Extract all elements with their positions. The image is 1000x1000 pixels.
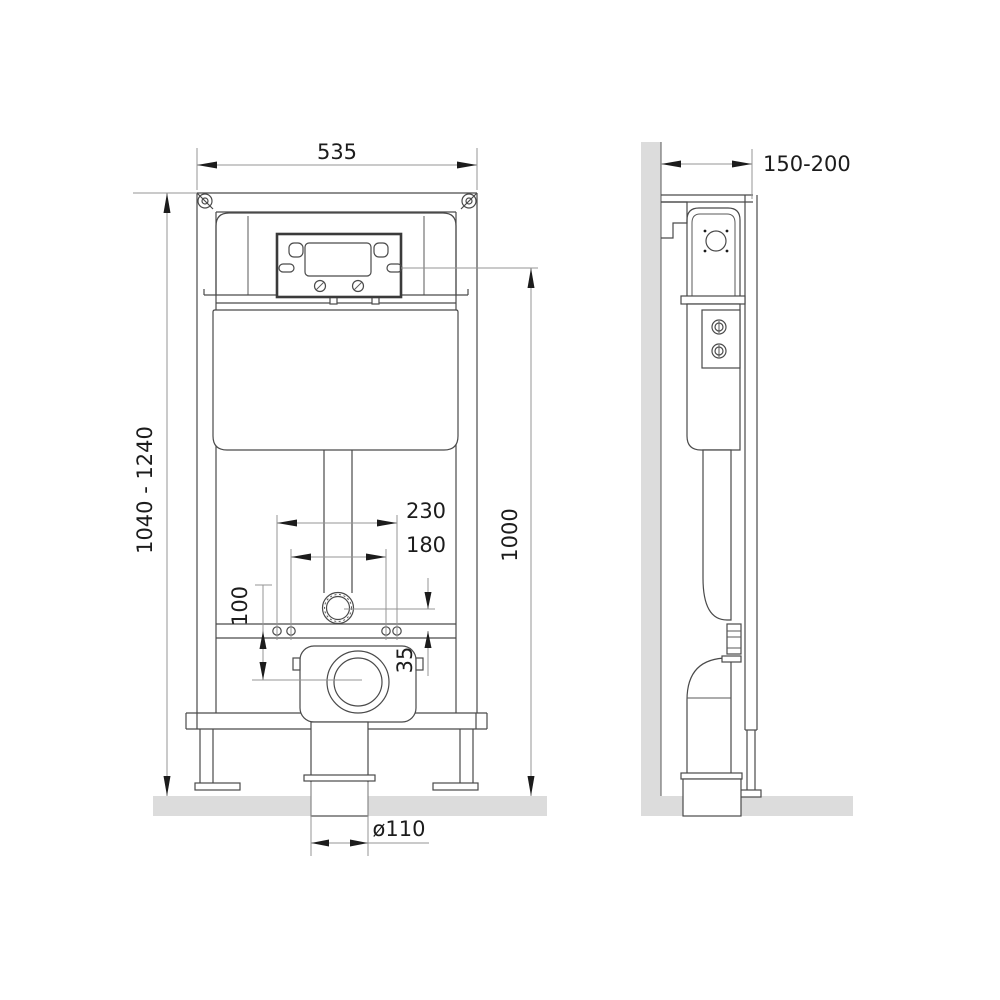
technical-drawing: 535 1040 - 1240 1000 230 bbox=[0, 0, 1000, 1000]
dim-frame-width-label: 535 bbox=[317, 140, 357, 164]
dim-frame-width: 535 bbox=[197, 140, 477, 190]
cistern-tank bbox=[213, 310, 458, 450]
drain-outlet bbox=[327, 651, 389, 713]
technical-drawing-page: 535 1040 - 1240 1000 230 bbox=[0, 0, 1000, 1000]
flush-pipe bbox=[324, 450, 352, 593]
fixing-crossbar bbox=[216, 624, 456, 638]
flush-plate-mount bbox=[277, 234, 402, 297]
dim-depth-range-label: 150-200 bbox=[763, 152, 851, 176]
side-flush-elbow bbox=[703, 450, 741, 654]
tank-screw-top bbox=[712, 320, 726, 334]
dim-holes-outer: 230 bbox=[277, 499, 446, 640]
foot-right bbox=[433, 729, 478, 790]
side-cistern bbox=[681, 208, 745, 450]
dim-holes-outer-label: 230 bbox=[406, 499, 446, 523]
wall-side bbox=[641, 142, 853, 816]
side-screw-plate bbox=[702, 310, 740, 368]
water-inlet-ring bbox=[323, 593, 354, 624]
dimension-annotations: 535 1040 - 1240 1000 230 bbox=[133, 140, 851, 856]
dim-inlet-offset-label: 35 bbox=[393, 647, 417, 674]
mount-screw-left bbox=[315, 281, 326, 292]
inlet-boss bbox=[704, 230, 729, 253]
drain-pipe bbox=[304, 722, 375, 816]
foot-left bbox=[195, 729, 240, 790]
dim-drain-diameter-label: ø110 bbox=[373, 817, 426, 841]
tank-screw-bottom bbox=[712, 344, 726, 358]
dim-depth-range: 150-200 bbox=[661, 149, 851, 199]
front-view bbox=[153, 193, 547, 816]
side-view bbox=[641, 142, 853, 816]
dim-drain-offset-label: 100 bbox=[228, 586, 252, 626]
mount-screw-right bbox=[353, 281, 364, 292]
side-drain-bend bbox=[681, 656, 742, 816]
side-drain-pipe bbox=[683, 779, 741, 816]
dim-install-height: 1040 - 1240 bbox=[133, 193, 197, 796]
side-drain-flange bbox=[681, 773, 742, 779]
dim-holes-inner-label: 180 bbox=[406, 533, 446, 557]
dim-install-height-label: 1040 - 1240 bbox=[133, 426, 157, 554]
dim-reference-height-label: 1000 bbox=[498, 508, 522, 561]
